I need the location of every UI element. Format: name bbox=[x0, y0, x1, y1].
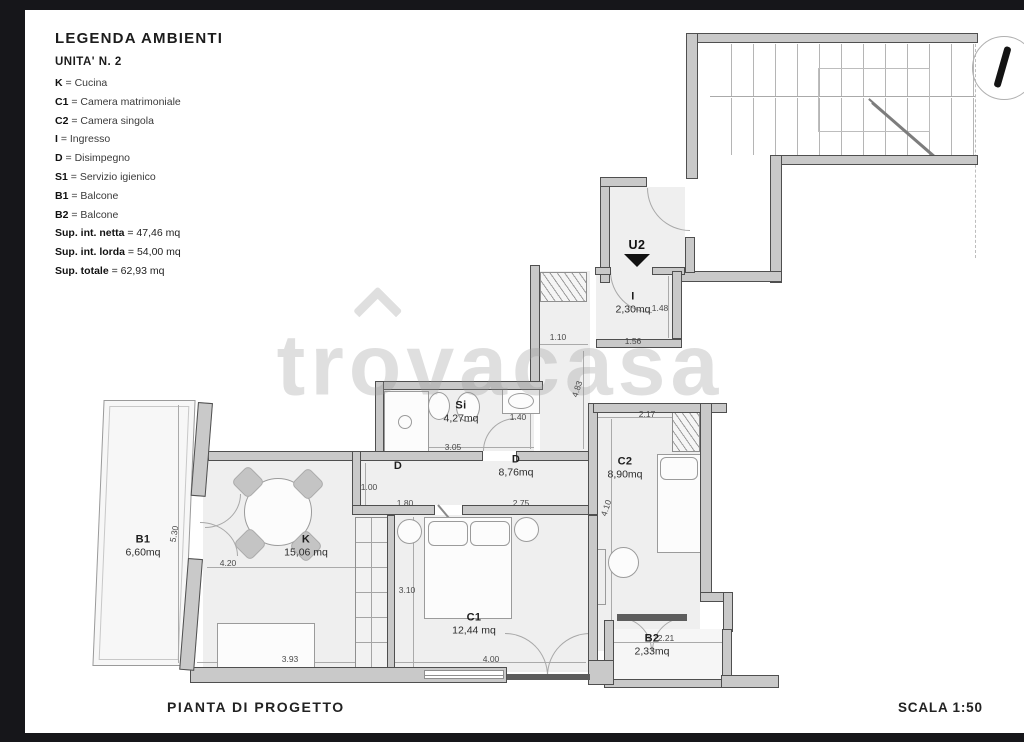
wall-segment bbox=[686, 33, 698, 179]
unit-entrance-marker: U2 bbox=[624, 238, 650, 267]
legend-title: LEGENDA AMBIENTI bbox=[55, 30, 223, 47]
entrance-arrow-icon bbox=[624, 254, 650, 267]
wall-segment bbox=[685, 237, 695, 273]
dimension-line bbox=[611, 419, 612, 647]
sofa bbox=[217, 623, 315, 668]
dimension-label: 2.75 bbox=[513, 498, 530, 508]
balcony-door-sill bbox=[617, 614, 687, 621]
room-label-disimpegno-2: D8,76mq bbox=[498, 454, 533, 479]
room-label-camera-singola: C28,90mq bbox=[607, 456, 642, 481]
floor-plan-page: LEGENDA AMBIENTI UNITA' N. 2 K = CucinaC… bbox=[0, 0, 1024, 742]
unit-entrance-label: U2 bbox=[624, 238, 650, 252]
shower-drain bbox=[398, 415, 412, 429]
dimension-label: 1.56 bbox=[625, 336, 642, 346]
dimension-label: 4.00 bbox=[483, 654, 500, 664]
bed-pillow bbox=[428, 521, 468, 546]
room-label-cucina: K15,06 mq bbox=[284, 534, 328, 559]
room-label-bagno: Si4,27mq bbox=[443, 400, 478, 425]
dimension-label: 1.48 bbox=[652, 303, 669, 313]
wall-segment bbox=[672, 271, 682, 339]
wardrobe bbox=[355, 517, 388, 668]
legend-entrie-row: K = Cucina bbox=[55, 74, 223, 93]
radiator bbox=[597, 549, 606, 605]
room-label-balcone-1: B16,60mq bbox=[125, 534, 160, 559]
washbasin bbox=[508, 393, 534, 409]
legend-entrie-row: D = Disimpegno bbox=[55, 149, 223, 168]
scale-label: SCALA 1:50 bbox=[898, 700, 983, 715]
dimension-label: 1.40 bbox=[510, 412, 527, 422]
dimension-label: 2.17 bbox=[639, 409, 656, 419]
legend-entrie-row: I = Ingresso bbox=[55, 130, 223, 149]
dimension-label: 3.93 bbox=[282, 654, 299, 664]
wall-segment bbox=[208, 451, 483, 461]
dimension-label: 3.10 bbox=[399, 585, 416, 595]
legend-entries: K = CucinaC1 = Camera matrimonialeC2 = C… bbox=[55, 74, 223, 224]
legend: LEGENDA AMBIENTI UNITA' N. 2 K = CucinaC… bbox=[55, 30, 223, 281]
legend-total-row: Sup. totale = 62,93 mq bbox=[55, 262, 223, 281]
window-band bbox=[424, 670, 504, 679]
room-label-ingresso: I2,30mq bbox=[615, 291, 650, 316]
dimension-label: 2.21 bbox=[658, 633, 675, 643]
shaft-hatch-window bbox=[540, 272, 587, 302]
nightstand bbox=[514, 517, 539, 542]
legend-entrie-row: B1 = Balcone bbox=[55, 187, 223, 206]
wall-segment bbox=[770, 155, 978, 165]
wall-segment bbox=[600, 177, 647, 187]
stair-well-outline bbox=[818, 68, 930, 132]
wall-segment bbox=[700, 403, 712, 594]
wall-segment bbox=[588, 660, 614, 685]
top-letterbox-bar bbox=[0, 0, 1024, 10]
dimension-line bbox=[540, 344, 588, 345]
wall-segment bbox=[686, 33, 978, 43]
legend-entrie-row: S1 = Servizio igienico bbox=[55, 168, 223, 187]
legend-totals: Sup. int. netta = 47,46 mqSup. int. lord… bbox=[55, 224, 223, 280]
room-label-camera-matrimoniale: C112,44 mq bbox=[452, 612, 496, 637]
bed-pillow bbox=[660, 457, 698, 480]
wall-segment bbox=[770, 155, 782, 283]
wall-segment bbox=[595, 267, 611, 275]
wall-segment bbox=[721, 675, 779, 688]
wall-segment bbox=[530, 265, 540, 390]
legend-unit: UNITA' N. 2 bbox=[55, 56, 223, 68]
wall-segment bbox=[375, 381, 543, 390]
dimension-line bbox=[583, 351, 584, 449]
bottom-letterbox-bar bbox=[0, 733, 1024, 742]
wall-segment bbox=[588, 515, 598, 672]
dimension-label: 1.10 bbox=[550, 332, 567, 342]
wall-segment bbox=[375, 381, 384, 460]
dimension-label: 3.05 bbox=[445, 442, 462, 452]
nightstand bbox=[608, 547, 639, 578]
legend-entrie-row: C2 = Camera singola bbox=[55, 112, 223, 131]
wall-segment bbox=[723, 592, 733, 632]
dimension-label: 1.00 bbox=[361, 482, 378, 492]
wall-segment bbox=[387, 515, 395, 672]
room-label-disimpegno-1: D bbox=[394, 460, 402, 472]
bed-pillow bbox=[470, 521, 510, 546]
wall-segment bbox=[604, 679, 724, 688]
balcony-door-sill bbox=[507, 674, 590, 680]
legend-total-row: Sup. int. netta = 47,46 mq bbox=[55, 224, 223, 243]
dimension-label: 4.20 bbox=[220, 558, 237, 568]
legend-entrie-row: B2 = Balcone bbox=[55, 206, 223, 225]
nightstand bbox=[397, 519, 422, 544]
legend-entrie-row: C1 = Camera matrimoniale bbox=[55, 93, 223, 112]
legend-total-row: Sup. int. lorda = 54,00 mq bbox=[55, 243, 223, 262]
plan-title: PIANTA DI PROGETTO bbox=[167, 699, 345, 715]
left-letterbox-bar bbox=[0, 0, 25, 742]
dimension-label: 1.80 bbox=[397, 498, 414, 508]
wall-segment bbox=[588, 403, 598, 515]
wall-segment bbox=[352, 505, 435, 515]
